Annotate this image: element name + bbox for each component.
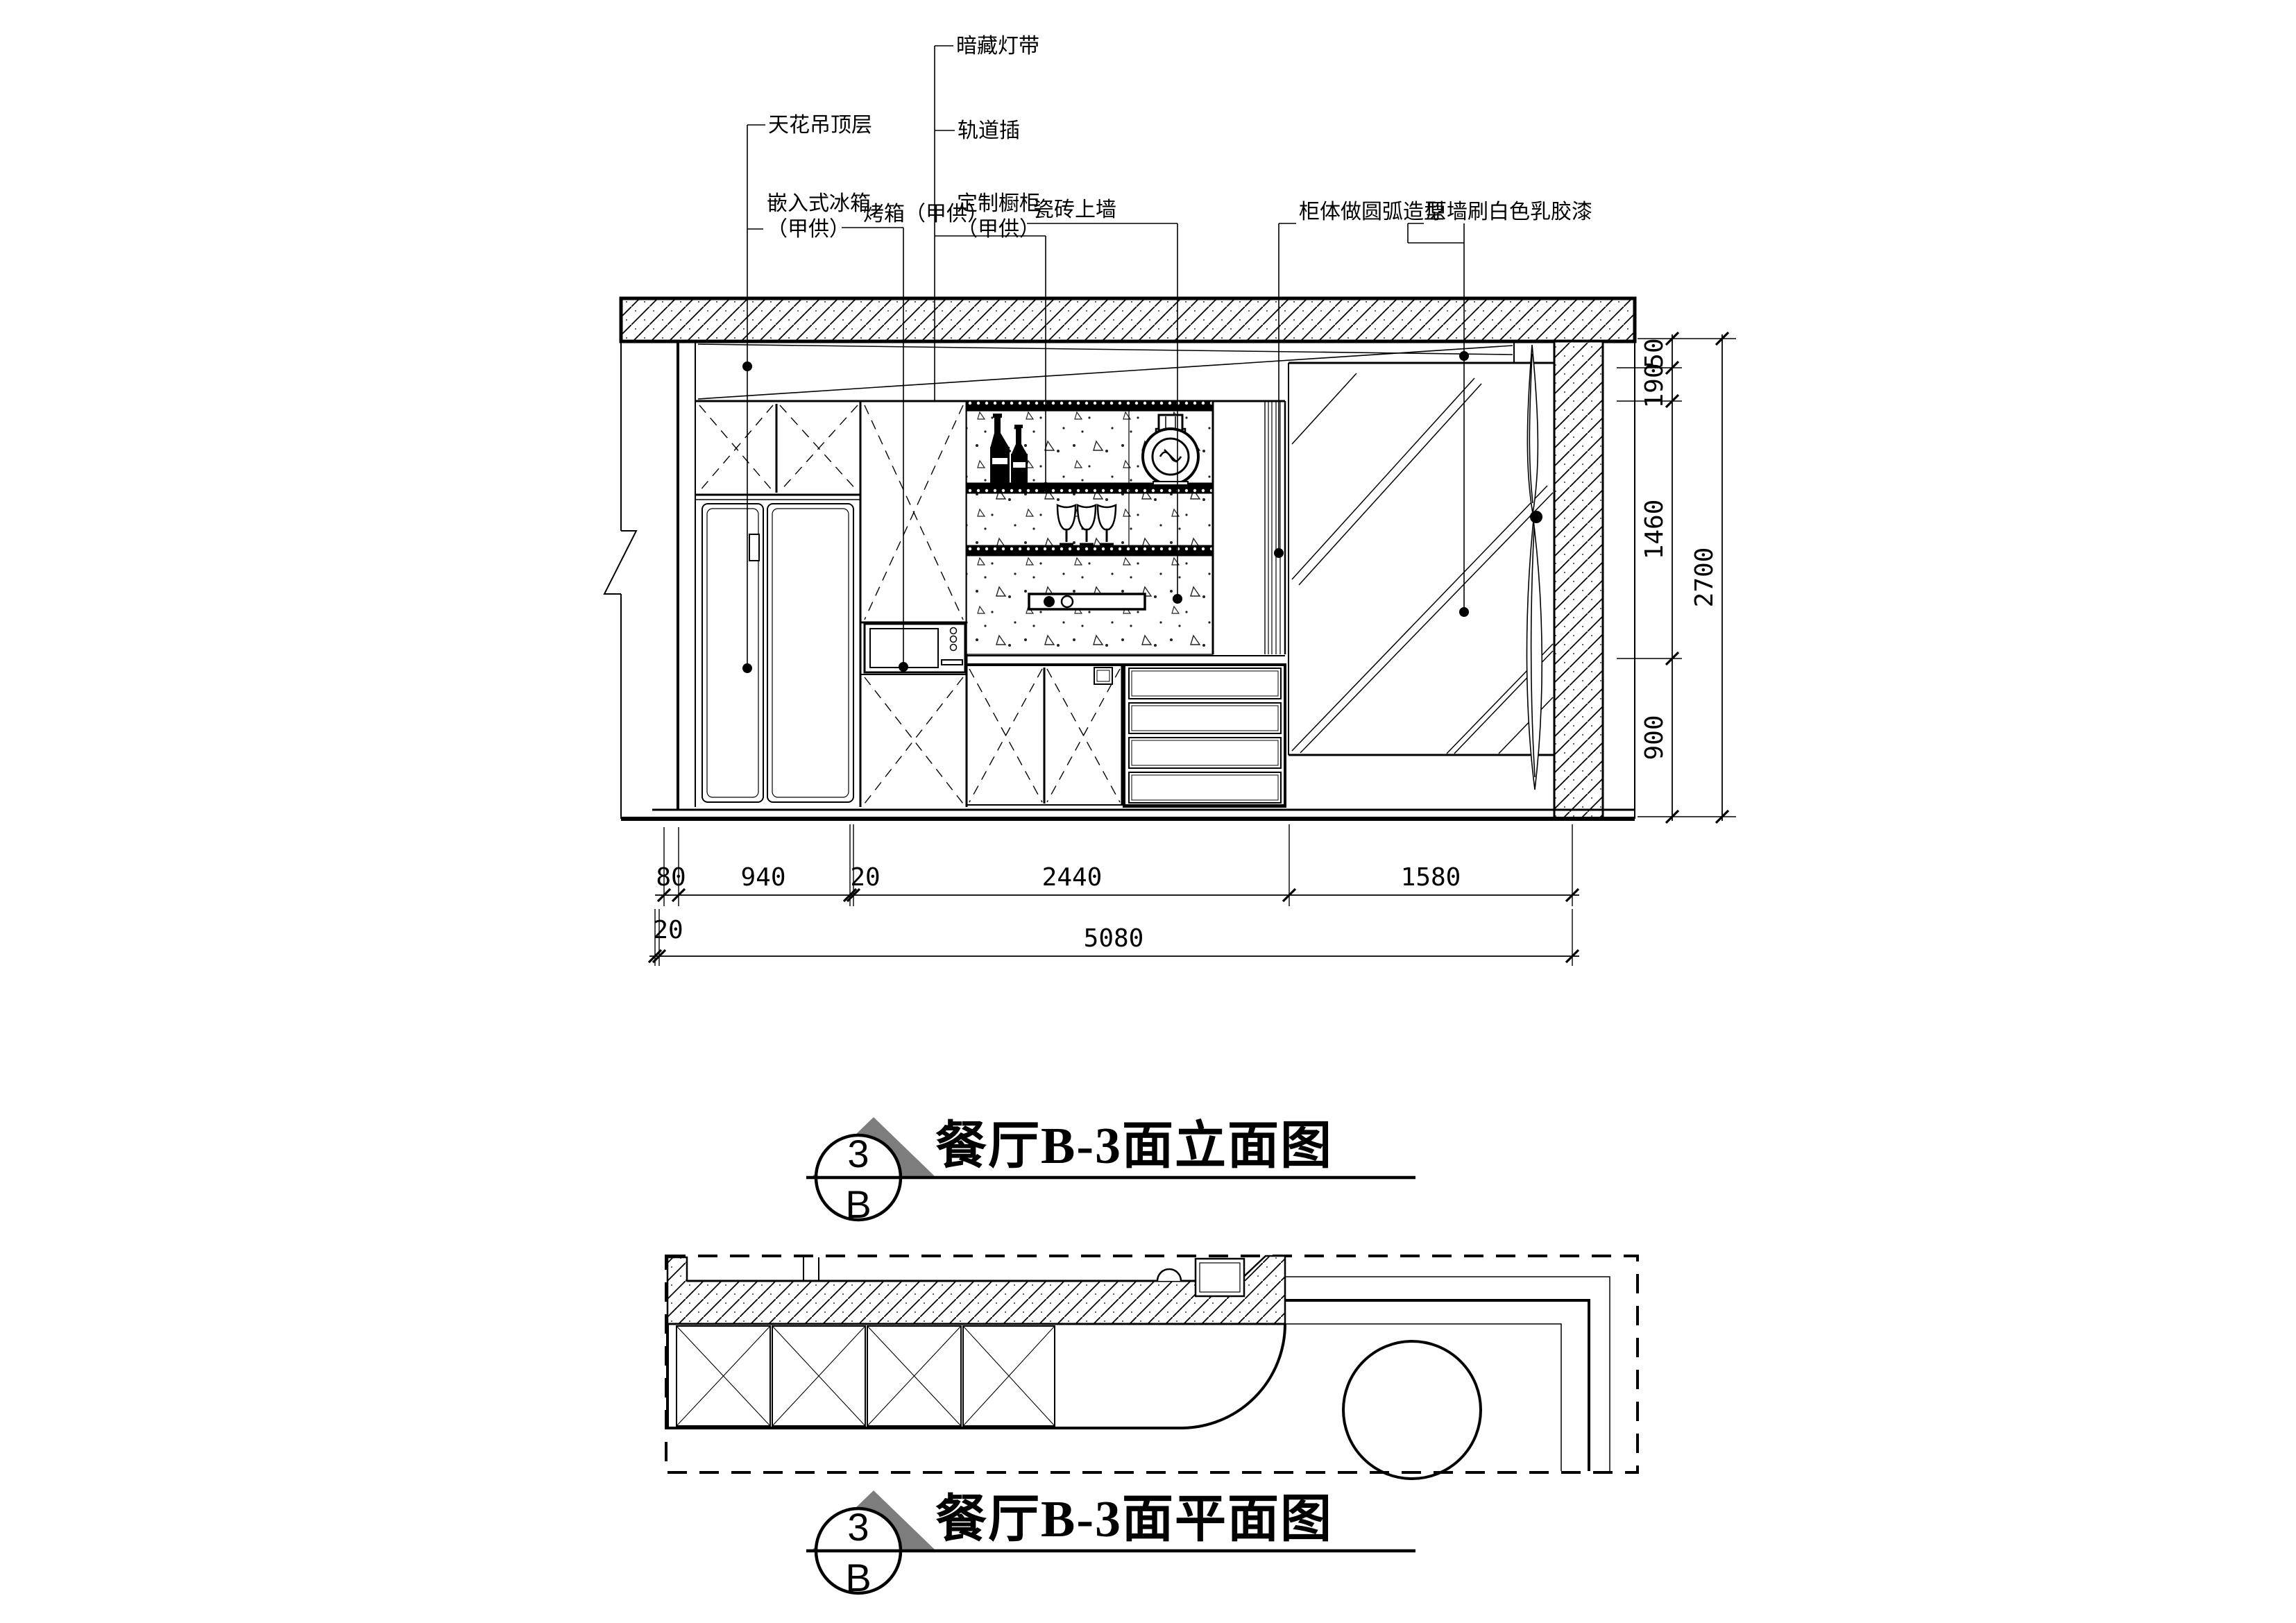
plan-title-text: 餐厅B-3面平面图 [935, 1491, 1333, 1548]
callout-labels: 暗藏灯带 轨道插 天花吊顶层 嵌入式冰箱 （甲供） 烤箱（甲供） 定制橱柜 （甲… [767, 35, 1592, 241]
section-marker-number: 3 [847, 1132, 869, 1175]
label-track-socket: 轨道插 [958, 119, 1020, 142]
label-wall-paint: 原墙刷白色乳胶漆 [1426, 201, 1592, 223]
dim-1580: 1580 [1401, 863, 1461, 892]
curtain-tieback [1530, 511, 1542, 523]
label-custom-cabinet-1: 定制橱柜 [957, 192, 1040, 215]
dim-5080: 5080 [1084, 924, 1144, 953]
wine-glasses [1057, 505, 1116, 544]
drawing-canvas: 暗藏灯带 轨道插 天花吊顶层 嵌入式冰箱 （甲供） 烤箱（甲供） 定制橱柜 （甲… [0, 0, 2296, 1623]
cad-sheet: 暗藏灯带 轨道插 天花吊顶层 嵌入式冰箱 （甲供） 烤箱（甲供） 定制橱柜 （甲… [0, 0, 2296, 1623]
plan-cabinet-boxes [677, 1326, 1055, 1426]
label-custom-cabinet-2: （甲供） [957, 218, 1040, 241]
section-marker-letter: B [845, 1182, 871, 1226]
section-marker-number: 3 [847, 1505, 869, 1549]
dim-1460: 1460 [1640, 500, 1669, 560]
oven-knob [951, 628, 957, 634]
oven-knob [951, 636, 957, 643]
fridge-handle [749, 534, 759, 561]
ceiling-beam [621, 298, 1635, 341]
curtain [1527, 345, 1542, 790]
leader-dot [1041, 482, 1051, 492]
dim-940: 940 [740, 863, 785, 892]
led-strip-top [967, 401, 1213, 411]
leader-dot [1173, 594, 1182, 604]
section-marker-letter: B [845, 1556, 871, 1599]
plan-right-wall-lines [1285, 1277, 1610, 1471]
mirror-panel [1289, 363, 1554, 755]
dim-900: 900 [1640, 715, 1669, 760]
plan-cabinet-outline [667, 1324, 1285, 1428]
upper-cabinets [699, 405, 858, 491]
plan-round-item [1157, 1269, 1181, 1281]
leader-dot [1274, 548, 1284, 558]
elevation-drawing [604, 298, 1635, 819]
oven-handle [942, 660, 962, 665]
rounded-cabinet-edge [1268, 401, 1285, 654]
built-in-fridge [702, 504, 853, 802]
plan-box-item [1196, 1259, 1244, 1296]
label-hidden-led: 暗藏灯带 [956, 35, 1039, 58]
elevation-title-text: 餐厅B-3面立面图 [935, 1118, 1333, 1175]
leader-dot [742, 663, 752, 673]
elevation-title: 3 B 餐厅B-3面立面图 [806, 1117, 1415, 1226]
dim-190: 190 [1640, 363, 1669, 408]
right-wall [1554, 341, 1603, 819]
left-wall-break [604, 341, 636, 819]
wall-bar [1029, 594, 1145, 609]
counter-socket-box [1094, 668, 1112, 684]
soffit-light-cove [695, 341, 1554, 401]
dim-20-inset: 20 [653, 916, 683, 944]
oven-column-doors [865, 405, 963, 804]
label-fridge-1: 嵌入式冰箱 [767, 192, 871, 215]
label-tile-wall: 瓷砖上墙 [1033, 198, 1116, 221]
plan-drawing [666, 1256, 1638, 1479]
plan-dining-table [1343, 1341, 1481, 1479]
leader-dot [742, 362, 752, 371]
leader-dot [1459, 351, 1469, 361]
dim-80: 80 [656, 863, 686, 892]
dim-2700: 2700 [1690, 547, 1719, 608]
shelf-board-2 [967, 545, 1213, 556]
label-fridge-2: （甲供） [767, 218, 850, 241]
drawer-stack [1124, 665, 1285, 806]
dim-2440: 2440 [1042, 863, 1103, 892]
oven-knob [951, 645, 957, 651]
dimension-bottom-labels: 80 940 20 2440 1580 20 5080 [653, 863, 1461, 953]
plan-title: 3 B 餐厅B-3面平面图 [806, 1490, 1415, 1599]
label-ceiling: 天花吊顶层 [768, 114, 872, 137]
leader-dot [899, 662, 908, 672]
label-arc-cabinet: 柜体做圆弧造型 [1299, 201, 1445, 223]
dim-20: 20 [850, 863, 880, 892]
plan-wall [667, 1256, 1285, 1324]
oven [865, 624, 965, 672]
leader-dot [1459, 607, 1469, 617]
